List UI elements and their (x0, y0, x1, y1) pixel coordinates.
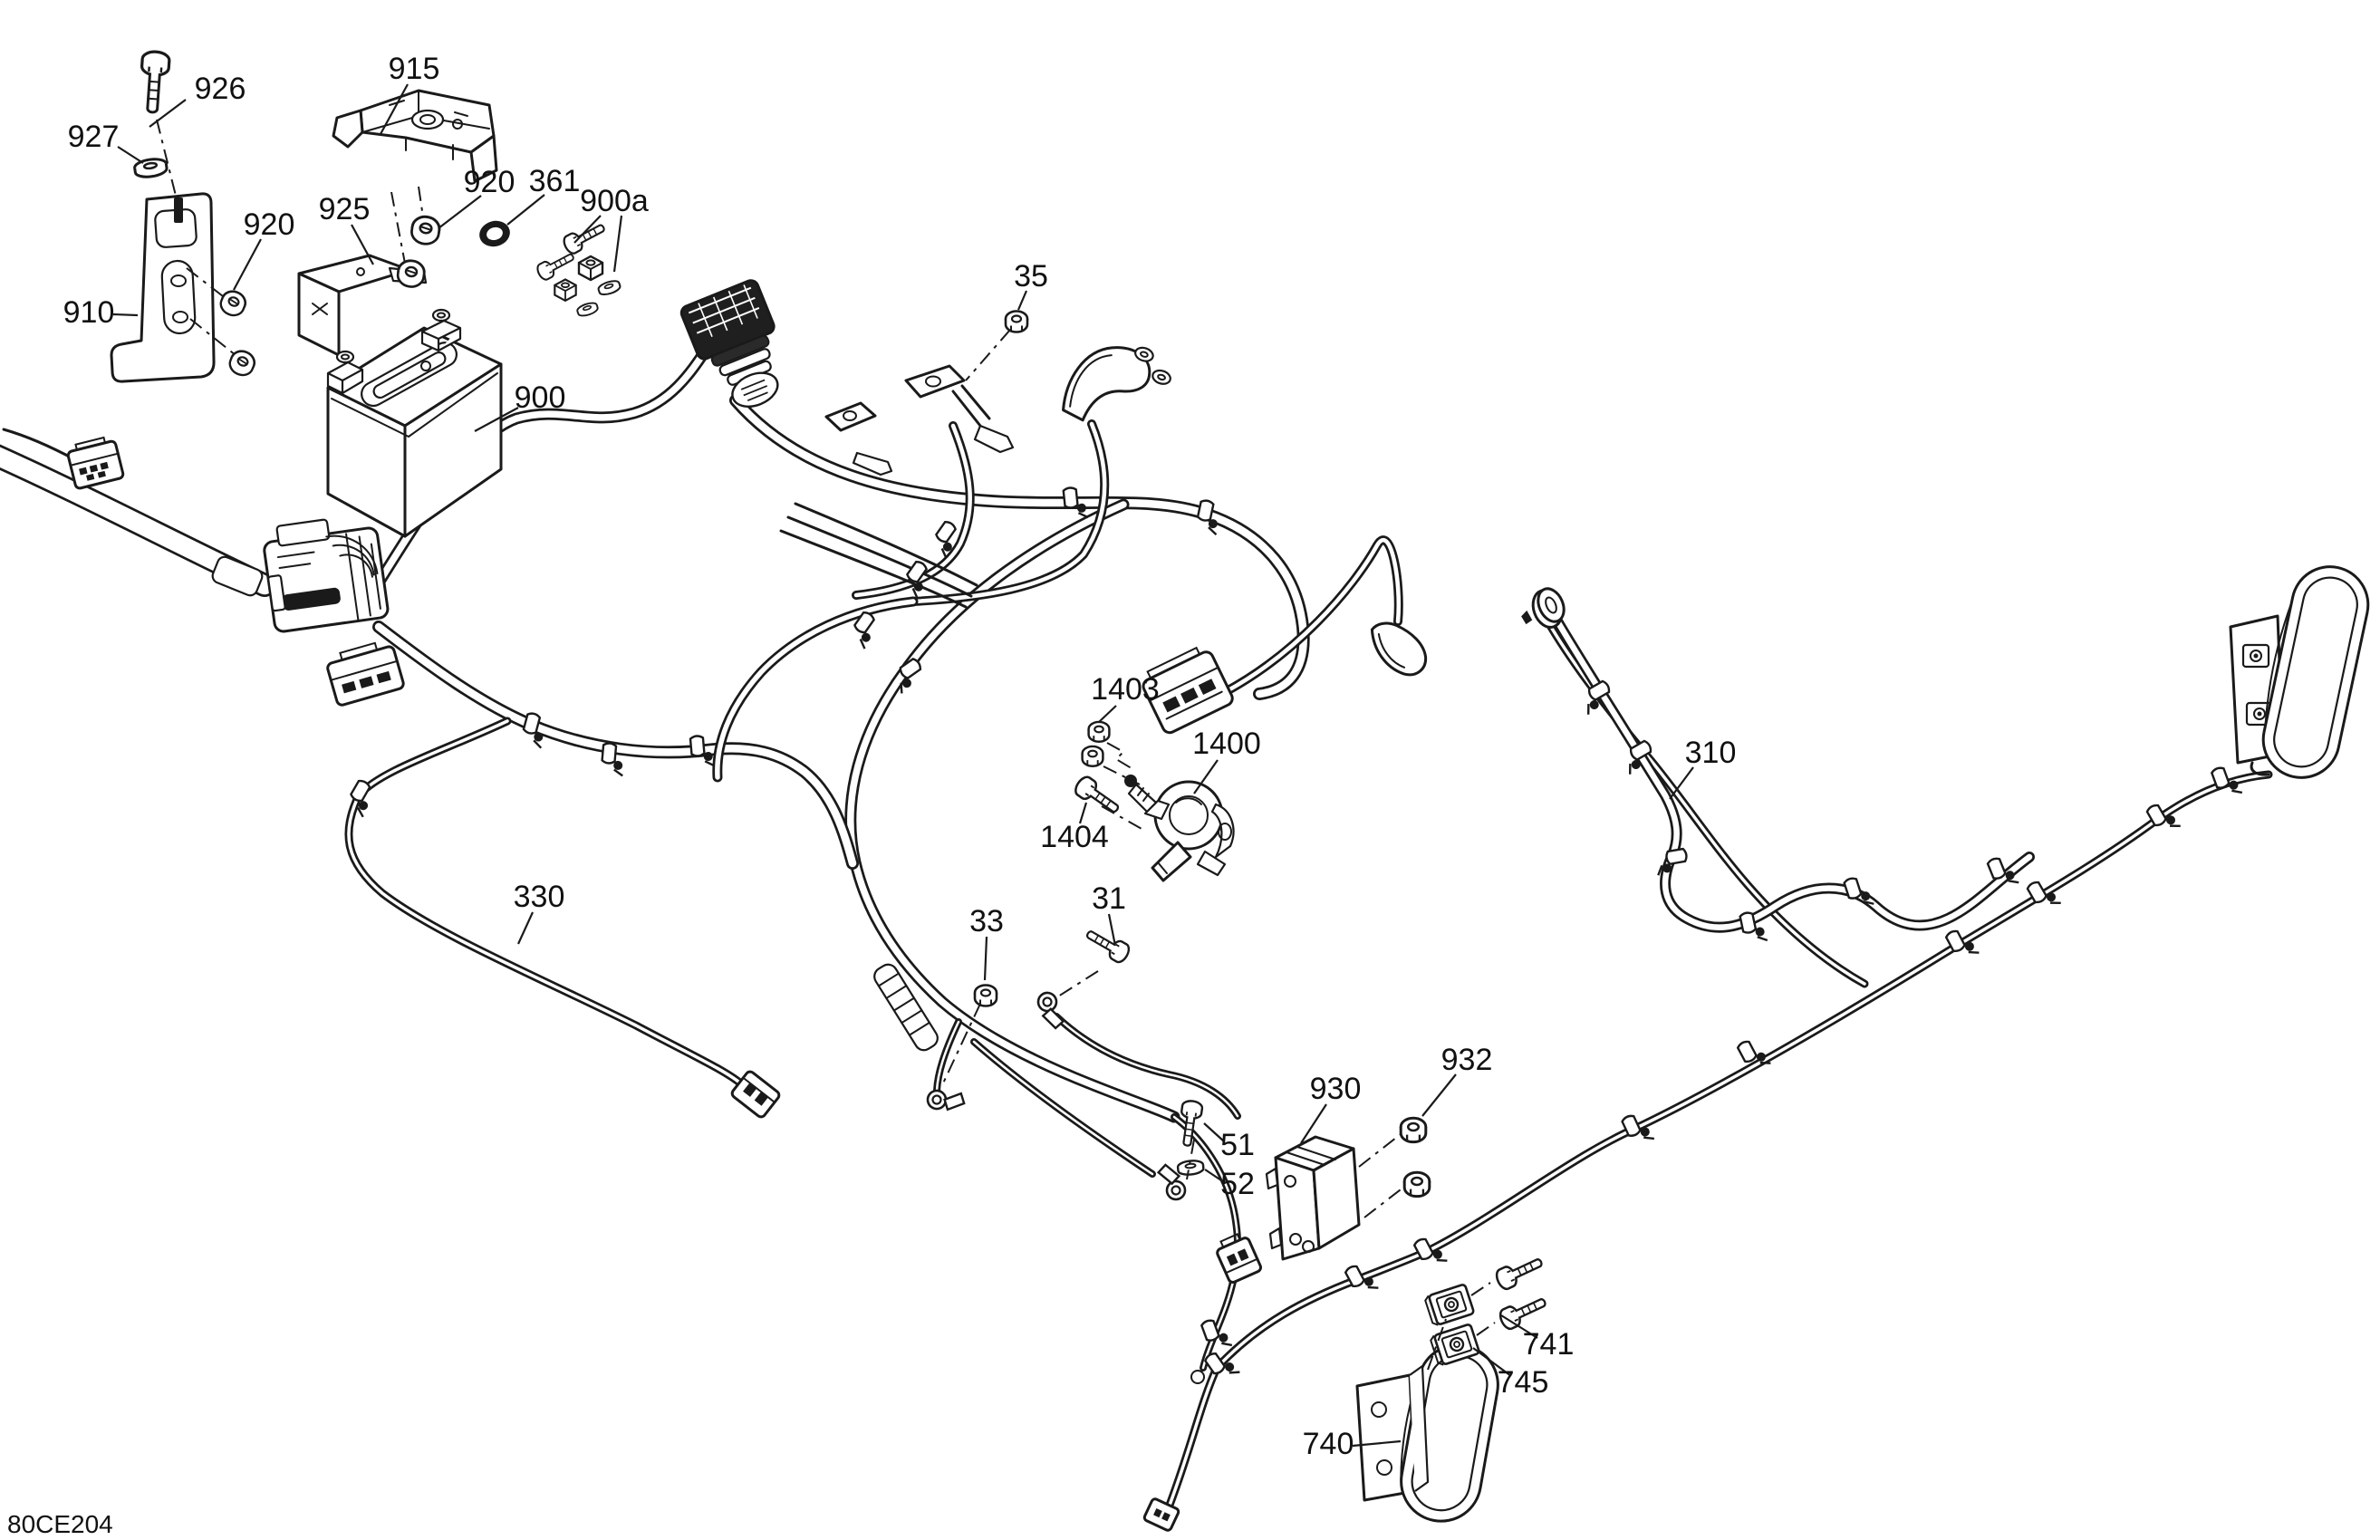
nut-35 (1006, 312, 1027, 332)
nuts-932 (1401, 1118, 1430, 1196)
starter-cable (1225, 540, 1399, 692)
leader-line-1403 (1099, 706, 1116, 722)
part-label-31: 31 (1092, 881, 1126, 916)
nut-33 (975, 986, 997, 1006)
bolt-1404 (1073, 775, 1123, 819)
bolts-741 (1494, 1252, 1549, 1331)
main-harness (0, 351, 2269, 1507)
connector-under-ecm (324, 639, 404, 707)
bracket-910 (111, 194, 214, 381)
axis-31 (1058, 971, 1098, 996)
part-label-927: 927 (68, 120, 120, 154)
part-label-51: 51 (1220, 1128, 1255, 1162)
part-label-915: 915 (389, 52, 440, 86)
leader-line-33 (985, 937, 987, 980)
ecm-connector (261, 513, 389, 632)
part-label-1403: 1403 (1091, 672, 1160, 707)
rear-taillight-cable (1169, 775, 2269, 1507)
part-label-1400: 1400 (1192, 727, 1261, 761)
harness-310 (1556, 620, 2029, 928)
grommet-920-right (410, 215, 441, 245)
part-label-740: 740 (1303, 1427, 1354, 1461)
ring-lug-ground-1 (924, 1079, 968, 1121)
part-label-35: 35 (1014, 259, 1048, 294)
ring-361 (477, 217, 513, 250)
part-label-1404: 1404 (1040, 820, 1109, 854)
leader-line-35 (1018, 291, 1026, 310)
leader-line-927 (118, 147, 143, 163)
taillight-left (1357, 1338, 1504, 1527)
part-label-925: 925 (319, 192, 371, 226)
leader-line-910 (113, 314, 138, 315)
taillight-right (2231, 559, 2375, 784)
battery (328, 310, 501, 536)
bolt-31 (1083, 925, 1132, 965)
trunk-sleeve (210, 554, 264, 597)
part-label-741: 741 (1523, 1327, 1575, 1362)
module-930 (1267, 1137, 1359, 1259)
grommet-925-arm (397, 259, 426, 288)
corrugated-sleeve (871, 961, 940, 1054)
grommet-920-left-1 (217, 288, 248, 319)
axis-35 (966, 330, 1010, 380)
harness-descending-loop (851, 505, 1174, 1117)
part-label-920: 920 (244, 207, 295, 242)
part-label-926: 926 (195, 72, 246, 106)
terminal-boot (1060, 329, 1178, 442)
part-label-52: 52 (1220, 1167, 1255, 1201)
leader-line-920 (234, 239, 261, 290)
leader-line-900a (614, 216, 621, 272)
axis-745-3 (1477, 1323, 1495, 1335)
part-label-330: 330 (514, 880, 565, 914)
part-label-33: 33 (969, 904, 1004, 938)
leader-line-330 (518, 912, 533, 944)
axis-932-1 (1359, 1134, 1401, 1167)
parts-diagram-page: 926927910920915925920361900a900351403140… (0, 0, 2380, 1540)
axis-915-1 (391, 192, 406, 268)
drawing-code: 80CE204 (7, 1510, 113, 1538)
part-label-900a: 900a (580, 184, 649, 218)
part-label-745: 745 (1498, 1365, 1549, 1400)
part-labels: 926927910920915925920361900a900351403140… (63, 52, 1737, 1461)
nuts-1403 (1083, 722, 1110, 766)
part-label-920-2: 920 (464, 165, 516, 199)
connector-black-top (679, 278, 800, 419)
bolt-926 (139, 51, 169, 113)
part-label-361: 361 (529, 164, 581, 198)
axis-932-2 (1364, 1187, 1404, 1218)
ground-cable-1 (937, 1022, 959, 1091)
wiring-harness-diagram: 926927910920915925920361900a900351403140… (0, 0, 2380, 1540)
connector-small-left (66, 435, 124, 489)
part-label-930: 930 (1310, 1072, 1362, 1106)
leader-line-932 (1422, 1074, 1456, 1116)
hardware-900a (535, 219, 621, 318)
leader-line-920 (438, 196, 481, 228)
part-label-932: 932 (1441, 1043, 1493, 1077)
part-label-910: 910 (63, 295, 115, 330)
part-label-310: 310 (1685, 736, 1737, 770)
axis-745-2 (1471, 1283, 1490, 1295)
part-label-900: 900 (515, 380, 566, 415)
